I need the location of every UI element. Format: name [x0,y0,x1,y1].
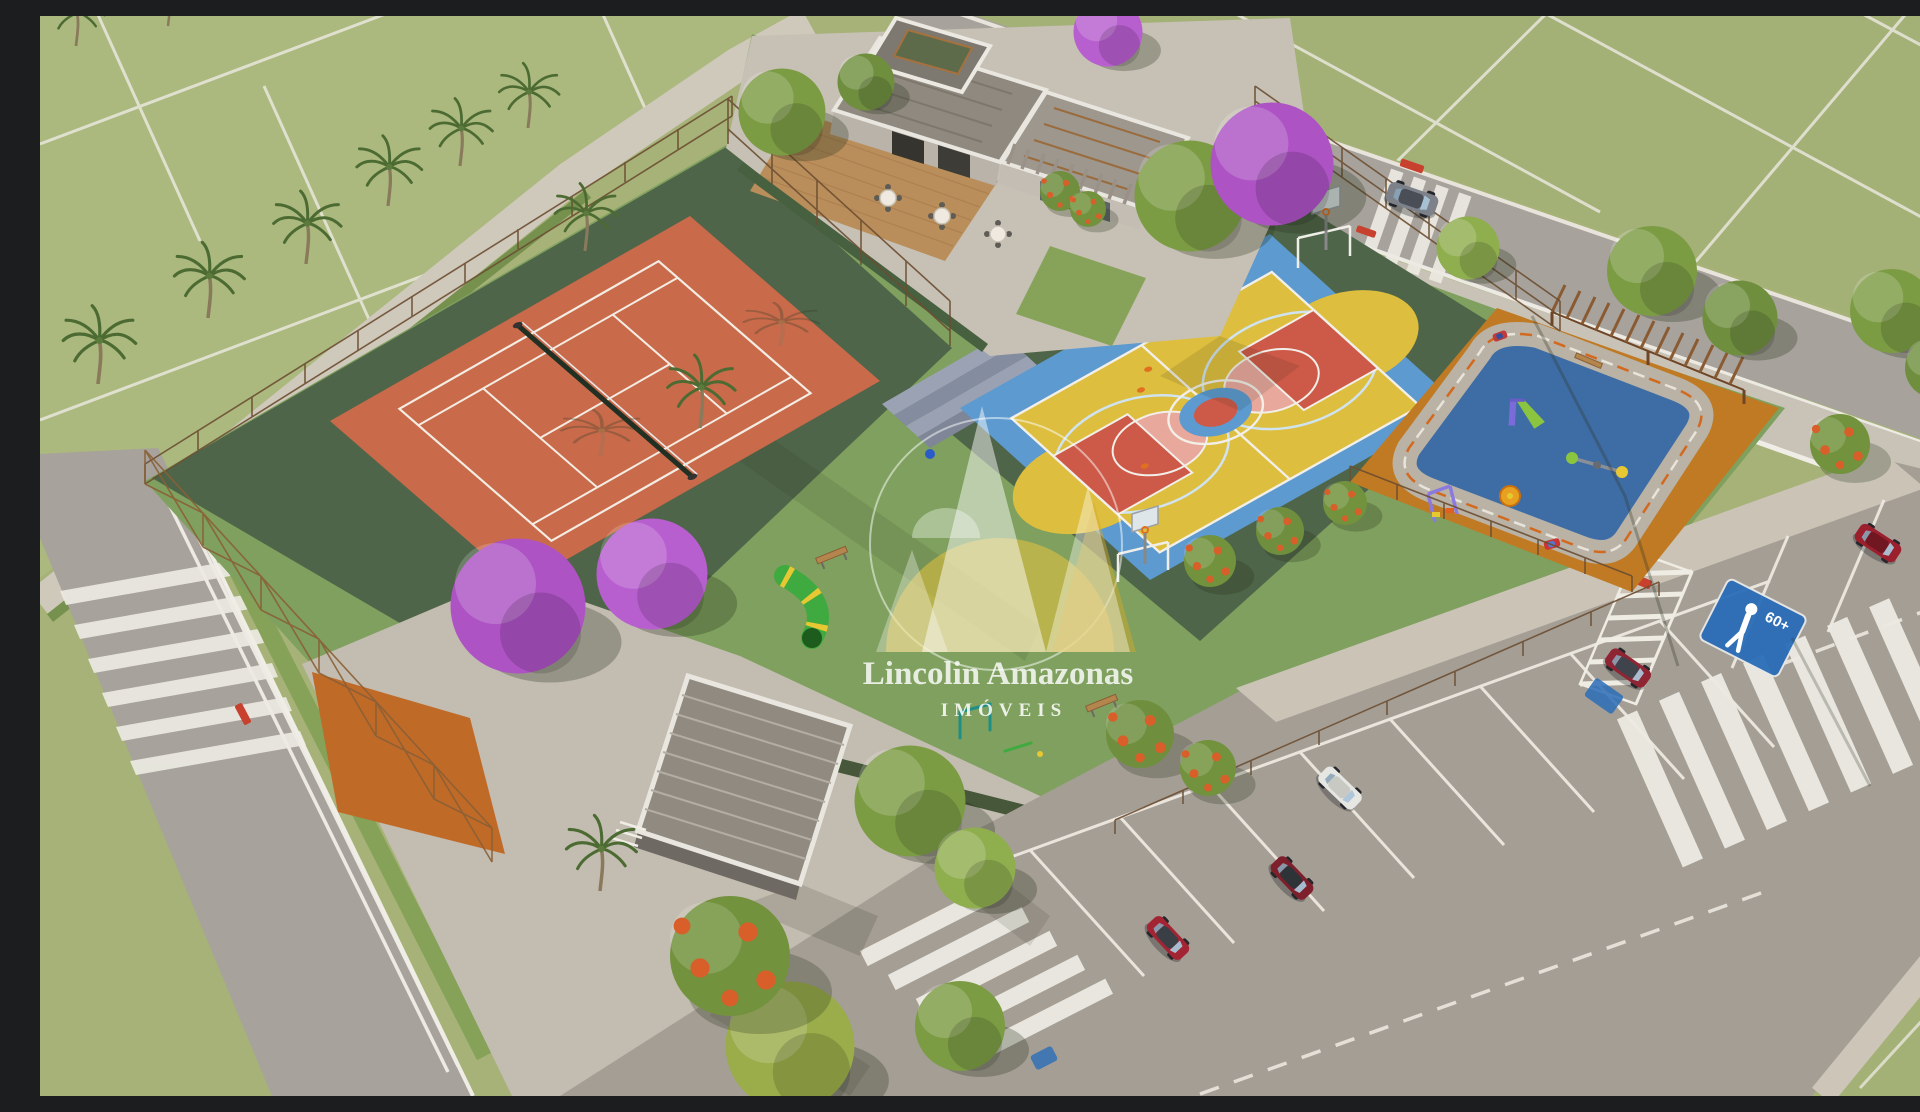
property-render: 60+ [40,16,1920,1096]
spinner-toy [1500,486,1520,506]
watermark-tagline: IMÓVEIS [941,699,1067,721]
scene: 60+ [40,16,1920,1096]
watermark-brand: Lincolin Amazonas [863,656,1134,692]
trash-bin [925,449,935,459]
tunnel-opening [802,628,822,648]
